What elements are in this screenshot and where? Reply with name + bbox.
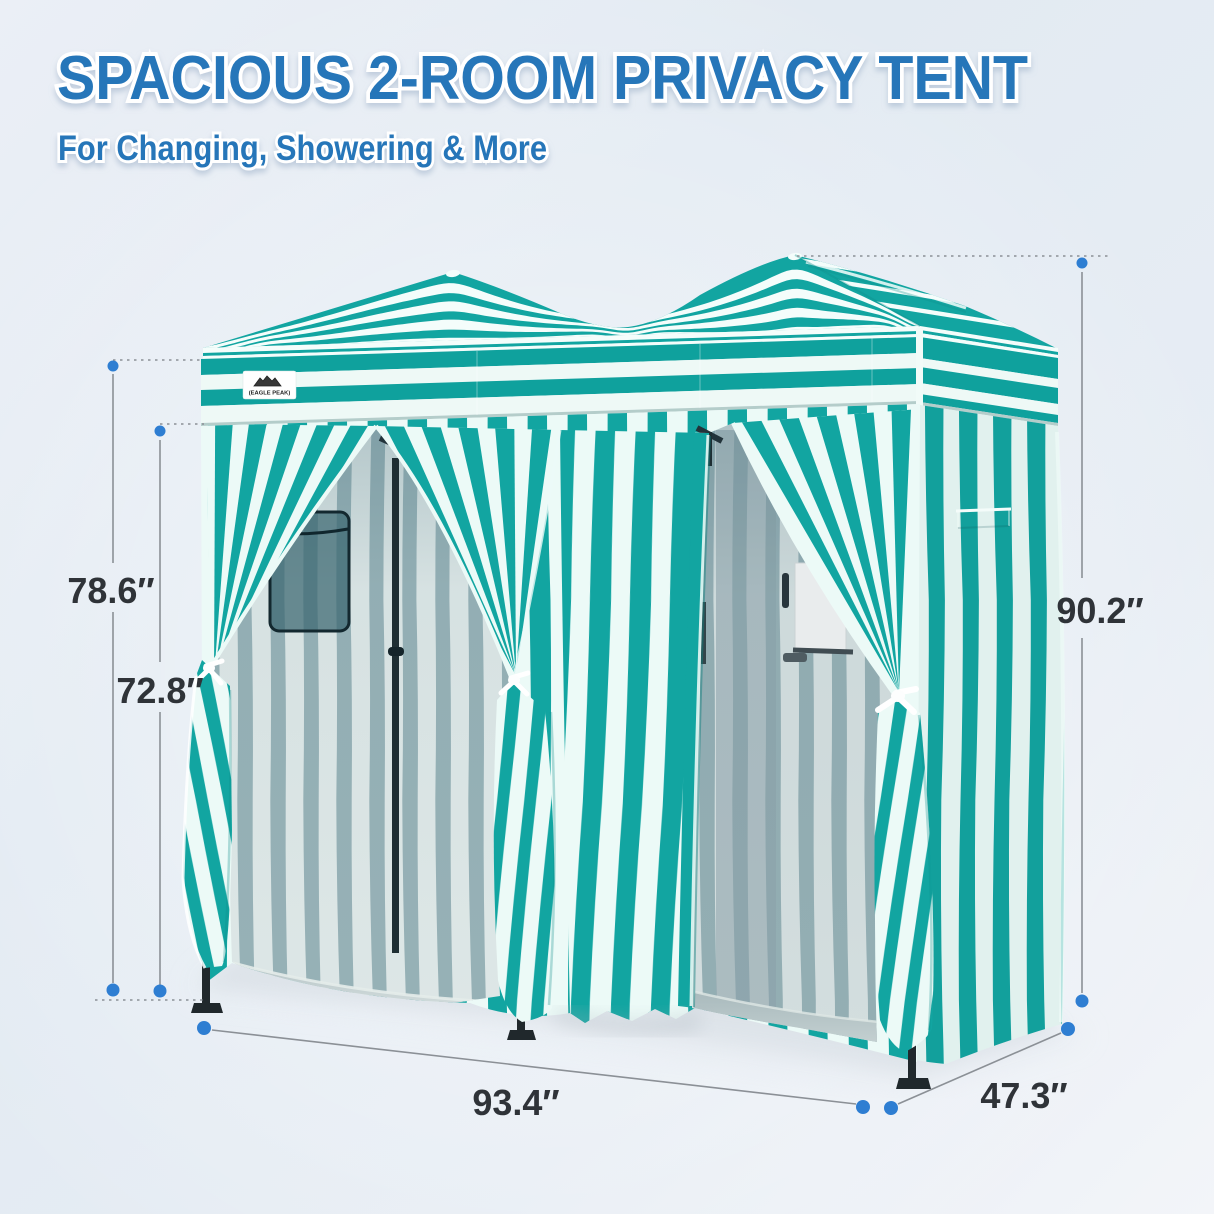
- svg-text:For Changing, Showering & More: For Changing, Showering & More: [58, 129, 547, 168]
- svg-text:90.2″: 90.2″: [1056, 590, 1143, 631]
- svg-text:47.3″: 47.3″: [980, 1075, 1067, 1116]
- svg-text:(EAGLE PEAK): (EAGLE PEAK): [249, 391, 291, 397]
- svg-text:93.4″: 93.4″: [472, 1082, 559, 1123]
- svg-text:72.8″: 72.8″: [116, 670, 203, 711]
- svg-text:SPACIOUS 2-ROOM PRIVACY TENT: SPACIOUS 2-ROOM PRIVACY TENT: [57, 44, 1028, 113]
- svg-text:78.6″: 78.6″: [67, 570, 154, 611]
